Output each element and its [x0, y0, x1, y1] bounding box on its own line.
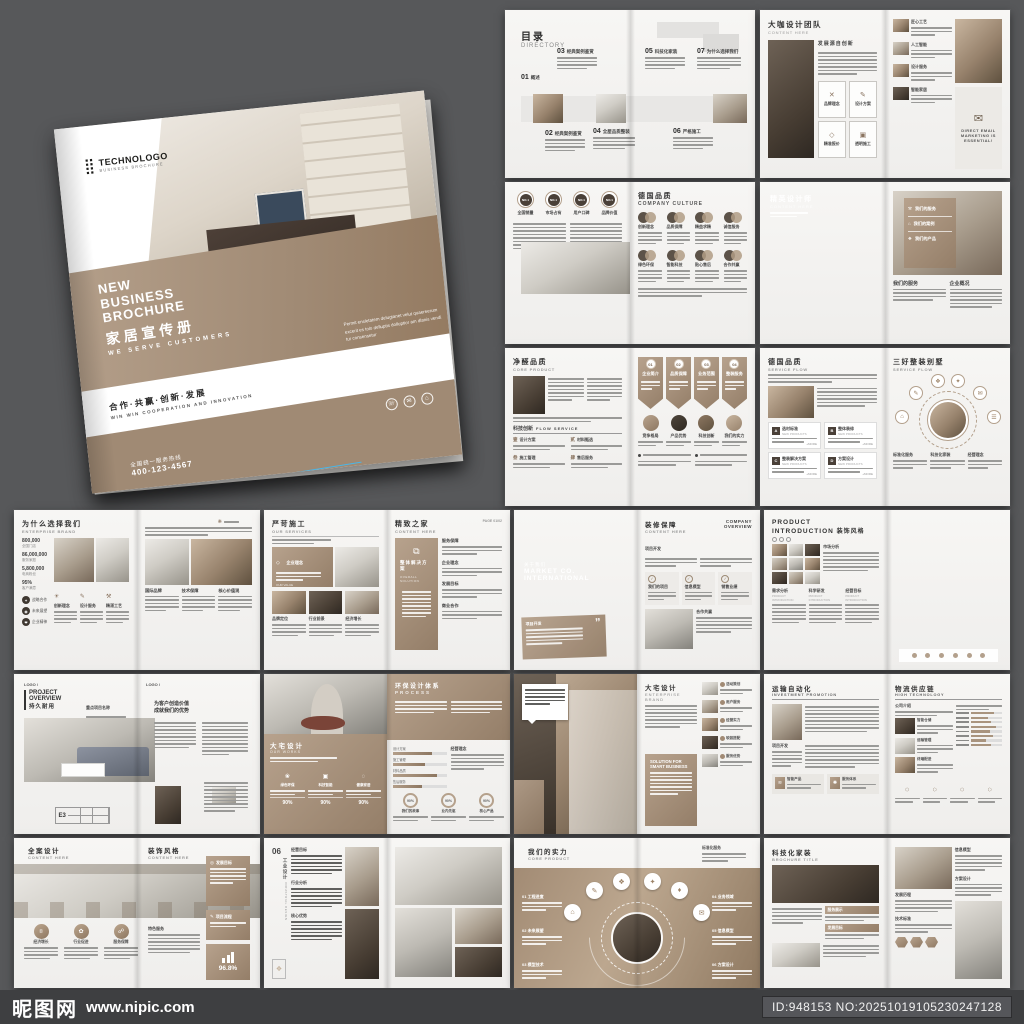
check-icon: ✓ [685, 575, 693, 583]
text-line-placeholder [817, 388, 877, 390]
banner-label: 整装服务 [726, 371, 743, 377]
text-line-placeholder [805, 727, 879, 729]
text-line-placeholder [442, 575, 478, 577]
body-lines [911, 95, 952, 104]
text-line-placeholder [210, 875, 246, 877]
photo-thumb [702, 700, 718, 713]
money-icon: ¤ [34, 924, 49, 939]
photo-studio [645, 609, 693, 649]
text-line-placeholder [442, 596, 478, 598]
text-line-placeholder [823, 559, 879, 561]
text-line-placeholder [893, 299, 933, 301]
stat-label: 客户满意 [22, 586, 51, 591]
text-line-placeholder [451, 765, 505, 767]
page-title: 装修保障 [645, 519, 686, 529]
intro-right-page [887, 510, 1010, 670]
hexagon-badge [910, 937, 923, 948]
page-subtitle: OUR SERVICES [272, 529, 379, 537]
text-line-placeholder [291, 932, 342, 934]
chapter-title-cn: 工业设计 [272, 858, 288, 880]
page-title: 德国品质 [638, 191, 747, 201]
text-line-placeholder [720, 711, 743, 713]
text-line-placeholder [712, 977, 736, 979]
topic-item: 我们的实力 [722, 415, 747, 448]
text-line-placeholder [522, 909, 546, 911]
list-label: 智能家居 [911, 87, 952, 93]
body-lines [204, 780, 248, 814]
text-line-placeholder [721, 592, 749, 594]
promo-text: ESSENTIAL! [961, 138, 996, 143]
text-line-placeholder [272, 635, 298, 637]
body-lines [823, 552, 879, 571]
rank-badge-item: NO.1市场占有 [541, 191, 566, 216]
text-line-placeholder [648, 592, 676, 594]
body-lines [722, 439, 747, 448]
text-line-placeholder [513, 463, 565, 465]
text-line-placeholder [402, 591, 432, 593]
bullet-circle-icon [720, 736, 725, 741]
logo-label: LOGO / [24, 682, 38, 687]
fullcase-left-title: 全案设计 CONTENT HERE [28, 845, 69, 860]
feature-row: ◉未来展望 [22, 607, 51, 615]
text-line-placeholder [395, 701, 447, 703]
bullet-circle-icon [720, 682, 725, 687]
text-line-placeholder [345, 635, 371, 637]
body-lines [712, 902, 752, 911]
text-line-placeholder [650, 776, 692, 778]
culture-item: 绿色环保 [638, 250, 662, 284]
pager-strip [899, 649, 997, 662]
body-lines [772, 604, 806, 623]
photo-thumb [702, 718, 718, 731]
page-title: 物流供应链 [895, 683, 1002, 693]
text-line-placeholder [154, 740, 196, 742]
toc-lines [645, 57, 685, 69]
photo-thumb [702, 682, 718, 695]
pattern-icon: ❖ [272, 959, 286, 979]
body-lines [725, 379, 745, 392]
text-line-placeholder [545, 143, 585, 145]
text-line-placeholder [805, 749, 879, 751]
text-line-placeholder [772, 765, 791, 767]
flow-label: 设计方案 [520, 437, 536, 443]
text-line-placeholder [955, 866, 1002, 868]
progress-row [956, 712, 1002, 714]
stat-item: 86,000,000服务家庭 [22, 552, 51, 563]
text-line-placeholder [402, 609, 432, 611]
item-label: 业务领域 [718, 894, 734, 899]
body-lines [895, 798, 920, 803]
body-lines [895, 711, 953, 716]
flow-number: 叁 [513, 455, 518, 461]
text-line-placeholder [545, 146, 585, 148]
text-line-placeholder [451, 761, 505, 763]
team-list-item: 匠心工艺 [893, 19, 952, 38]
text-line-placeholder [695, 232, 719, 234]
text-line-placeholder [587, 378, 623, 380]
body-lines [145, 527, 252, 536]
photo-hallway [345, 847, 379, 906]
text-line-placeholder [828, 471, 860, 473]
text-line-placeholder [685, 599, 701, 601]
gallery-column: 行业前景 [309, 591, 343, 638]
page-title: 目录 [521, 28, 565, 43]
card-subtitle: OUR VALUE [276, 583, 329, 587]
text-line-placeholder [696, 621, 752, 623]
photo-thumb [805, 558, 820, 570]
body-lines [526, 627, 584, 644]
text-line-placeholder [638, 295, 702, 297]
text-line-placeholder [402, 616, 427, 618]
text-line-placeholder [545, 150, 575, 152]
value-card: ◇ 企业理念 OUR VALUE [272, 547, 333, 587]
photo-stairs [455, 947, 502, 977]
text-line-placeholder [154, 743, 196, 745]
logistics-row: 终端配送 [895, 757, 953, 775]
brochure-cover-mockup: ⣿ TECHNOLOGO BUSINESS BROCHURE NEW BUSIN… [52, 95, 472, 505]
page-subtitle: CONTENT HERE [768, 30, 877, 35]
toc-label: 概述 [531, 75, 540, 80]
text-line-placeholder [818, 56, 877, 58]
body-lines [842, 784, 876, 789]
team-list-item: 设计服务 [893, 64, 952, 83]
text-line-placeholder [202, 726, 248, 728]
text-line-placeholder [823, 949, 879, 951]
section-heading: 市场分析 [823, 544, 879, 550]
body-lines [469, 816, 504, 821]
stat-item: 95%客户满意 [22, 580, 51, 591]
body-lines [638, 232, 662, 244]
text-line-placeholder [641, 385, 661, 387]
body-lines [525, 689, 565, 705]
text-line-placeholder [805, 766, 855, 768]
text-line-placeholder [218, 603, 252, 605]
text-line-placeholder [667, 236, 691, 238]
strength-item: 04 业务领域 [712, 894, 752, 913]
flow-left-page: 德国品质 SERVICE FLOW A选材标准NEW PRODUCTS+MORE… [760, 348, 885, 506]
body-lines [956, 705, 1002, 710]
text-line-placeholder [346, 790, 381, 792]
text-line-placeholder [917, 729, 953, 731]
text-section: 发展历程 [895, 892, 952, 914]
text-line-placeholder [772, 611, 806, 613]
double-circle-icon [695, 250, 713, 262]
text-section: 发展目标 [442, 581, 502, 600]
bar-section: 发展目标 [825, 924, 879, 939]
flow-label: 材料甄选 [577, 437, 593, 443]
text-line-placeholder [270, 794, 295, 796]
text-line-placeholder [650, 783, 692, 785]
logo-label: LOGO / [146, 682, 160, 687]
box-label: 我们的项目 [648, 584, 676, 590]
page-title: 运输自动化 [772, 683, 879, 693]
text-section: 商业合作 [442, 603, 502, 622]
body-lines [930, 460, 964, 469]
feature-box: ◇精准报价 [818, 121, 846, 158]
text-line-placeholder [106, 618, 129, 620]
text-line-placeholder [895, 904, 952, 906]
text-line-placeholder [522, 902, 562, 904]
donut-label: 业内先驱 [431, 809, 466, 814]
rank-badge: NO.1 [601, 191, 618, 208]
body-lines [700, 556, 752, 569]
percent-value: 90% [346, 797, 381, 806]
body-lines [513, 445, 565, 450]
text-line-placeholder [911, 27, 952, 29]
donut-item: 90%业内先驱 [431, 793, 466, 823]
center-photo-ring [927, 399, 969, 441]
text-line-placeholder [823, 952, 879, 954]
toc-label: 科技化家装 [655, 49, 678, 54]
photo-label: 品牌定位 [272, 616, 306, 622]
text-line-placeholder [148, 941, 200, 943]
page-title: 我们的实力 [528, 846, 570, 856]
text-line-placeholder [697, 68, 730, 70]
row-label: 智能仓储 [917, 718, 953, 723]
text-line-placeholder [828, 441, 860, 443]
text-line-placeholder [724, 274, 748, 276]
gear-icon: ✺ [830, 777, 840, 789]
text-line-placeholder [712, 909, 736, 911]
body-lines [720, 725, 752, 730]
topic-item: 产品优势 [666, 415, 691, 448]
flow-right-page: 三好整装别墅 SERVICE FLOW ⌂ ✎ ❖ ✦ ✉ ☰ 标准化服务 科技… [885, 348, 1010, 506]
text-line-placeholder [291, 925, 342, 927]
text-line-placeholder [787, 787, 811, 789]
text-line-placeholder [772, 922, 803, 924]
text-line-placeholder [210, 922, 246, 924]
text-line-placeholder [202, 740, 248, 742]
toc-lines [673, 137, 713, 149]
body-lines [346, 790, 381, 795]
text-line-placeholder [893, 460, 927, 462]
brand-list-item: 软装搭配 [702, 736, 752, 750]
core-left-page: 净醛品质 CORE PRODUCT 科技创新 FLOW SERVICE 壹设计方… [505, 348, 630, 506]
body-lines [697, 379, 717, 392]
text-line-placeholder [809, 604, 843, 606]
more-link: +MORE [806, 472, 817, 476]
text-line-placeholder [272, 624, 306, 626]
toc-item: 03经典案例鉴赏 [557, 48, 597, 71]
text-line-placeholder [291, 873, 332, 875]
progress-item: 设计方案 [393, 746, 447, 755]
text-line-placeholder [845, 604, 879, 606]
text-line-placeholder [911, 95, 952, 97]
text-line-placeholder [805, 763, 879, 765]
text-line-placeholder [895, 907, 952, 909]
sofa-decor [301, 716, 345, 730]
spread-core-product: 净醛品质 CORE PRODUCT 科技创新 FLOW SERVICE 壹设计方… [505, 348, 755, 506]
text-line-placeholder [772, 912, 822, 914]
text-line-placeholder [917, 745, 953, 747]
body-lines [106, 611, 129, 623]
icon-column: ✎设计服务 [80, 585, 103, 625]
promo-box: ✉ DIRECT EMAIL MARKETING IS ESSENTIAL! [955, 87, 1002, 169]
text-line-placeholder [695, 239, 719, 241]
body-lines [666, 439, 691, 448]
text-line-placeholder [650, 772, 692, 774]
text-line-placeholder [291, 939, 332, 941]
culture-item: 合作共赢 [724, 250, 748, 284]
cover-contact-icons: ☏ ✉ ⌂ [385, 392, 434, 411]
column-label: 创新理念 [54, 603, 77, 609]
spread-full-case-design: 全案设计 CONTENT HERE 装饰风格 CONTENT HERE ¤经济增… [14, 838, 260, 988]
text-line-placeholder [638, 239, 662, 241]
text-line-placeholder [202, 722, 248, 724]
body-lines [845, 604, 879, 623]
photo-detail-dark [155, 786, 181, 824]
section-heading: 企业理念 [442, 560, 502, 566]
body-lines [968, 460, 1002, 469]
text-line-placeholder [645, 64, 685, 66]
spread-our-strength: 我们的实力 CORE PRODUCT 标准化服务 ⌂ ✎ ❖ ✦ ♦ ✉ 01 … [514, 838, 760, 988]
text-line-placeholder [667, 270, 691, 272]
banner-number: 02 [674, 359, 684, 369]
culture-left-page: NO.1全国销量 NO.1市场占有 NO.1用户口碑 NO.1品牌价值 [505, 182, 630, 344]
column-label: 健康家居 [346, 783, 381, 788]
diamond-node-icon: ♦ [671, 882, 688, 899]
text-line-placeholder [513, 467, 550, 469]
photo-dining: ⚒我们的服务 ⌂我们的案例 ❖我们的产品 [893, 191, 1002, 275]
services-left-page: 严苛施工 OUR SERVICES ◇ 企业理念 OUR VALUE 品牌定位 … [264, 510, 387, 670]
photo-room-small [309, 591, 343, 614]
body-lines [638, 288, 747, 297]
photo-bedroom [768, 386, 814, 418]
progress-item: 材料品质 [393, 768, 447, 777]
body-lines [522, 970, 562, 979]
photo-dining-warm [54, 538, 94, 582]
text-line-placeholder [291, 906, 332, 908]
spread-elite-designer: 精英设计师 CONTENT HERE ⚒我们的服务 ⌂我们的案例 ❖我们的产品 … [760, 182, 1010, 344]
text-line-placeholder [772, 755, 802, 757]
text-line-placeholder [154, 736, 196, 738]
text-section: 服务保障 [442, 538, 502, 557]
text-line-placeholder [823, 556, 879, 558]
text-line-placeholder [272, 631, 306, 633]
body-lines [148, 934, 200, 953]
photo-thumb [893, 42, 909, 55]
brand-title-block: 大宅设计 ENTERPRISE BRAND [645, 682, 697, 730]
text-line-placeholder [64, 958, 90, 960]
text-section: 行业分析 [291, 880, 342, 909]
text-section: 经营目标 [291, 847, 342, 876]
text-line-placeholder [645, 726, 680, 728]
toc-item: 05科技化家装 [645, 48, 685, 71]
text-line-placeholder [522, 970, 562, 972]
flow-item: 贰材料甄选 [571, 437, 623, 452]
hexagon-icon: ⬡ [960, 787, 964, 792]
body-lines [182, 596, 216, 612]
analysis-column: 需求分析PRODUCT INTRODUCTION [772, 588, 806, 625]
text-line-placeholder [911, 53, 952, 55]
text-line-placeholder [148, 945, 200, 947]
text-line-placeholder [696, 628, 752, 630]
body-lines [645, 556, 697, 569]
fullcase-right-title: 装饰风格 CONTENT HERE [148, 845, 189, 860]
banner-number: 01 [646, 359, 656, 369]
text-section: 企业理念 [442, 560, 502, 579]
company-name: MARKET CO. [524, 568, 590, 575]
text-line-placeholder [955, 891, 1002, 893]
goal-panel: ◎发展目标 [206, 856, 250, 906]
text-line-placeholder [955, 862, 1002, 864]
body-lines [772, 906, 822, 941]
photo-room-small [345, 591, 379, 614]
text-line-placeholder [669, 388, 681, 390]
text-line-placeholder [548, 399, 572, 401]
text-line-placeholder [210, 882, 233, 884]
bell-icon: ◌ [362, 774, 366, 780]
strength-item: 03 模型技术 [522, 962, 562, 981]
text-line-placeholder [638, 441, 663, 443]
body-lines [950, 289, 1003, 308]
process-bottom-area: 设计方案 施工管理 材料品质 售后服务 经营理念 90%我们的故事 90%业内先… [393, 746, 504, 830]
feature-label: 精准报价 [824, 141, 840, 147]
text-line-placeholder [513, 445, 565, 447]
text-line-placeholder [469, 820, 494, 822]
process-panel: ✎项目流程 [206, 910, 250, 940]
text-line-placeholder [202, 743, 248, 745]
badge-label: 用户口碑 [573, 210, 589, 216]
corner-label: 标准化服务 [702, 846, 746, 851]
spread-project-overview: LOGO / LOGO / PROJECT OVERVIEW 持久耐用 重点项目… [14, 674, 260, 834]
team-list-item: 人工智能 [893, 42, 952, 61]
text-section: 经营理念 [451, 746, 505, 790]
section-heading: 我们的服务 [893, 280, 946, 287]
text-line-placeholder [526, 634, 583, 637]
panel-subtitle: OUR WORKS [270, 750, 381, 754]
text-line-placeholder [721, 599, 737, 601]
text-line-placeholder [291, 899, 342, 901]
text-line-placeholder [346, 794, 371, 796]
text-line-placeholder [54, 618, 77, 620]
text-line-placeholder [955, 884, 1002, 886]
text-line-placeholder [930, 464, 964, 466]
text-line-placeholder [817, 405, 865, 407]
toc-number: 05 [645, 48, 653, 55]
text-section: 项目开发 [645, 537, 752, 569]
text-line-placeholder [697, 57, 741, 59]
photo-corridor2 [895, 847, 952, 889]
text-line-placeholder [345, 628, 379, 630]
spread-company-culture: NO.1全国销量 NO.1市场占有 NO.1用户口碑 NO.1品牌价值 德国品质… [505, 182, 755, 344]
service-row: ⌂我们的案例 [908, 217, 952, 232]
double-circle-icon [724, 212, 742, 224]
tag-letter: A [772, 427, 780, 435]
text-line-placeholder [571, 445, 623, 447]
progress-row [956, 717, 1002, 719]
text-line-placeholder [772, 919, 822, 921]
body-lines [587, 376, 623, 414]
page-subtitle: CONTENT HERE [645, 529, 686, 534]
text-line-placeholder [154, 747, 189, 749]
text-line-placeholder [402, 598, 432, 600]
text-line-placeholder [772, 908, 822, 910]
item-label: 服务优势 [726, 754, 740, 759]
photo-bedroom-circle [611, 912, 663, 964]
culture-label: 诚信服务 [724, 224, 748, 230]
text-line-placeholder [431, 816, 466, 818]
text-line-placeholder [911, 79, 935, 81]
text-line-placeholder [673, 141, 713, 143]
brand-list-item: 服务优势 [702, 754, 752, 768]
text-line-placeholder [182, 606, 216, 608]
text-line-placeholder [770, 212, 808, 214]
page-title: 全案设计 [28, 845, 69, 855]
team-list-item: 智能家居 [893, 87, 952, 106]
text-line-placeholder [638, 274, 662, 276]
pager-dot [967, 653, 972, 658]
